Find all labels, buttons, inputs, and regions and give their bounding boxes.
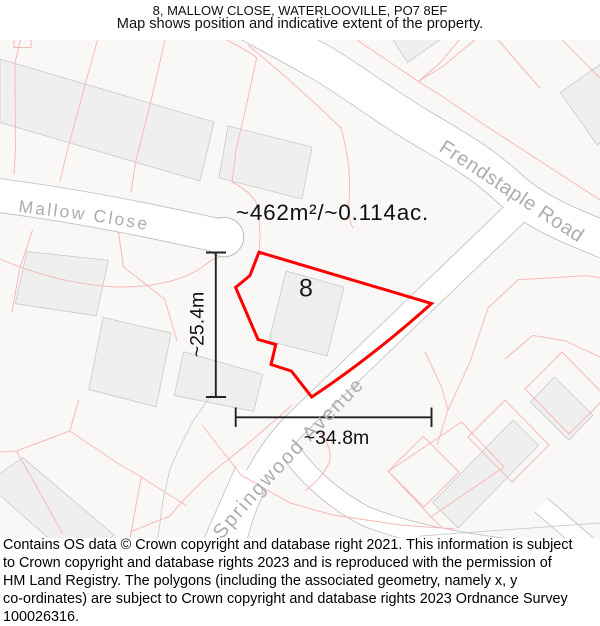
svg-text:~25.4m: ~25.4m xyxy=(187,292,209,358)
svg-text:8: 8 xyxy=(299,275,313,303)
svg-text:~462m²/~0.114ac.: ~462m²/~0.114ac. xyxy=(236,200,429,225)
svg-text:~34.8m: ~34.8m xyxy=(304,427,370,449)
